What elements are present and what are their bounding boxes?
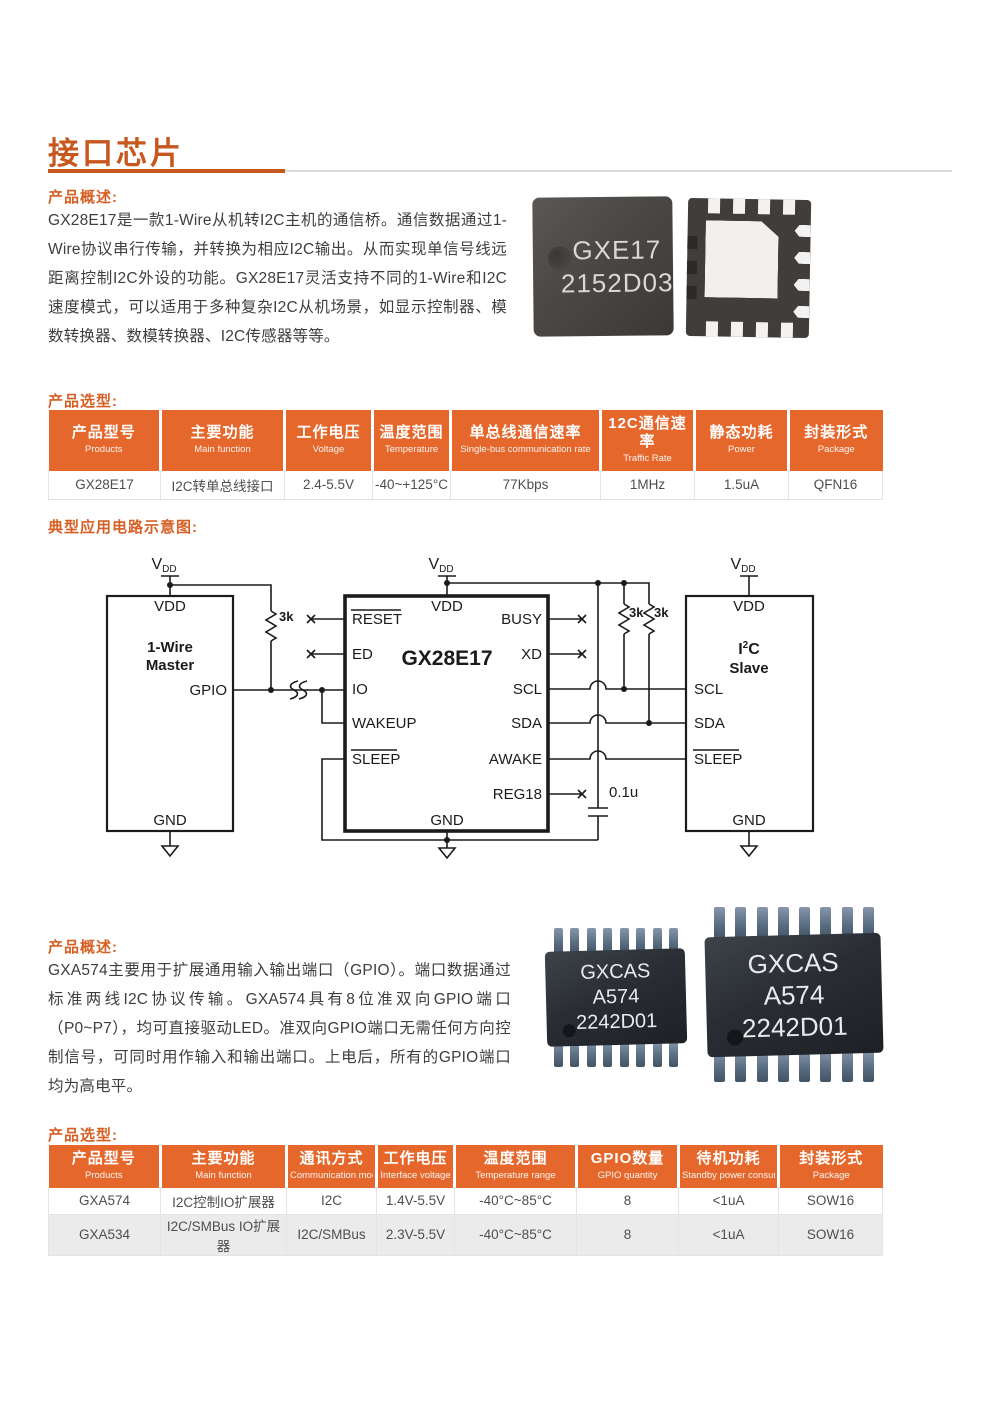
diagram-label: 典型应用电路示意图:: [48, 516, 198, 537]
vdd-symbol-right: VDD: [730, 556, 758, 596]
page-title: 接口芯片: [48, 128, 184, 173]
title-underline: [48, 169, 952, 173]
svg-text:3k: 3k: [654, 605, 669, 620]
selection-label-2: 产品选型:: [48, 1124, 118, 1145]
product-table-2: 产品型号Products 主要功能Main function 通讯方式Commu…: [48, 1145, 883, 1256]
overview-text-1: GX28E17是一款1-Wire从机转I2C主机的通信桥。通信数据通过1-Wir…: [48, 206, 507, 351]
svg-text:VDD: VDD: [428, 556, 453, 575]
svg-text:VDD: VDD: [431, 598, 463, 615]
svg-text:3k: 3k: [629, 605, 644, 620]
gpio-wire: [233, 681, 345, 723]
table1-header-row: 产品型号Products 主要功能Main function 工作电压Volta…: [49, 410, 883, 471]
one-wire-master-block: [107, 596, 233, 831]
ground-icon: [741, 846, 757, 856]
scl-wire: [548, 681, 686, 689]
table1-row-gx28e17: GX28E17 I2C转单总线接口 2.4-5.5V -40~+125°C 77…: [49, 471, 883, 499]
overview-label-2: 产品概述:: [48, 936, 118, 957]
svg-text:REG18: REG18: [493, 786, 542, 803]
svg-text:VDD: VDD: [730, 556, 755, 575]
datasheet-page: 接口芯片 产品概述: GX28E17是一款1-Wire从机转I2C主机的通信桥。…: [0, 0, 1000, 1426]
svg-text:SLEEP: SLEEP: [694, 751, 742, 768]
svg-text:ED: ED: [352, 646, 373, 663]
title-underline-orange: [48, 169, 285, 173]
svg-text:Master: Master: [146, 657, 195, 674]
svg-text:Slave: Slave: [729, 660, 768, 677]
bus-wires: [548, 681, 686, 759]
table2-row-gxa534: GXA534 I2C/SMBus IO扩展器 I2C/SMBus 2.3V-5.…: [49, 1214, 883, 1255]
svg-text:VDD: VDD: [733, 598, 765, 615]
ground-icon: [162, 846, 178, 856]
svg-text:1-Wire: 1-Wire: [147, 639, 193, 656]
svg-text:SCL: SCL: [513, 681, 542, 698]
svg-text:AWAKE: AWAKE: [489, 751, 542, 768]
svg-text:VDD: VDD: [151, 556, 176, 575]
svg-text:XD: XD: [521, 646, 542, 663]
sda-wire: [548, 715, 686, 723]
awake-sleep-wire: [548, 751, 686, 759]
selection-label-1: 产品选型:: [48, 390, 118, 411]
master-labels: VDD 1-Wire Master GPIO GND: [146, 598, 227, 829]
sow16-package-photo-large: GXCAS A574 2242D01: [698, 905, 890, 1085]
svg-text:I2C: I2C: [738, 640, 760, 658]
vdd-symbol-left: VDD: [151, 556, 179, 596]
product-table-1: 产品型号Products 主要功能Main function 工作电压Volta…: [48, 410, 883, 500]
ground-chip: [439, 831, 455, 858]
svg-text:WAKEUP: WAKEUP: [352, 715, 416, 732]
qfn-package-back-photo: [686, 198, 811, 338]
i2c-slave-block: [686, 596, 813, 831]
capacitor-icon: 0.1u: [588, 784, 638, 840]
pin1-dot-icon: [563, 1024, 576, 1037]
i2c-slave-labels: VDD I2C Slave SCL SDA SLEEP GND: [693, 598, 769, 829]
ground-icon: [439, 848, 455, 858]
svg-text:IO: IO: [352, 681, 368, 698]
pin1-dot-icon: [727, 1029, 743, 1045]
svg-text:BUSY: BUSY: [501, 611, 542, 628]
svg-text:SLEEP: SLEEP: [352, 751, 400, 768]
svg-text:SDA: SDA: [511, 715, 542, 732]
sow16-package-photo-small: GXCAS A574 2242D01: [540, 926, 692, 1072]
svg-text:GPIO: GPIO: [189, 682, 227, 699]
table2-header-row: 产品型号Products 主要功能Main function 通讯方式Commu…: [49, 1145, 883, 1188]
ground-slave: [741, 831, 757, 856]
svg-text:GND: GND: [153, 812, 187, 829]
gx28e17-labels: VDD GX28E17 RESET ED IO WAKEUP SLEEP BUS…: [351, 598, 542, 829]
resistor-scl-3k: 3k: [619, 604, 644, 689]
pin1-dot-icon: [548, 246, 572, 270]
no-connect-stubs: [307, 615, 586, 798]
application-circuit-diagram: VDD VDD VDD VDD 1-Wire Master GPIO GND V…: [60, 544, 830, 879]
svg-text:GND: GND: [732, 812, 766, 829]
overview-label-1: 产品概述:: [48, 186, 118, 207]
table2-row-gxa574: GXA574 I2C控制IO扩展器 I2C 1.4V-5.5V -40°C~85…: [49, 1188, 883, 1214]
svg-text:0.1u: 0.1u: [609, 784, 638, 801]
svg-text:RESET: RESET: [352, 611, 402, 628]
qfn-package-front-photo: GXE17 2152D03: [532, 196, 673, 336]
resistor-sda-3k: 3k: [644, 604, 669, 723]
svg-text:VDD: VDD: [154, 598, 186, 615]
svg-text:SDA: SDA: [694, 715, 725, 732]
svg-text:GX28E17: GX28E17: [401, 647, 492, 670]
svg-text:GND: GND: [430, 812, 464, 829]
vdd-symbol-center: VDD: [428, 556, 456, 596]
chip-marking-line2: 2152D03: [561, 266, 674, 300]
qfn-center-pad: [704, 220, 778, 298]
chip-marking-line1: GXE17: [572, 233, 661, 267]
overview-text-2: GXA574主要用于扩展通用输入输出端口（GPIO）。端口数据通过标准两线I2C…: [48, 956, 511, 1101]
svg-text:3k: 3k: [279, 609, 294, 624]
ground-master: [162, 831, 178, 856]
svg-text:SCL: SCL: [694, 681, 723, 698]
